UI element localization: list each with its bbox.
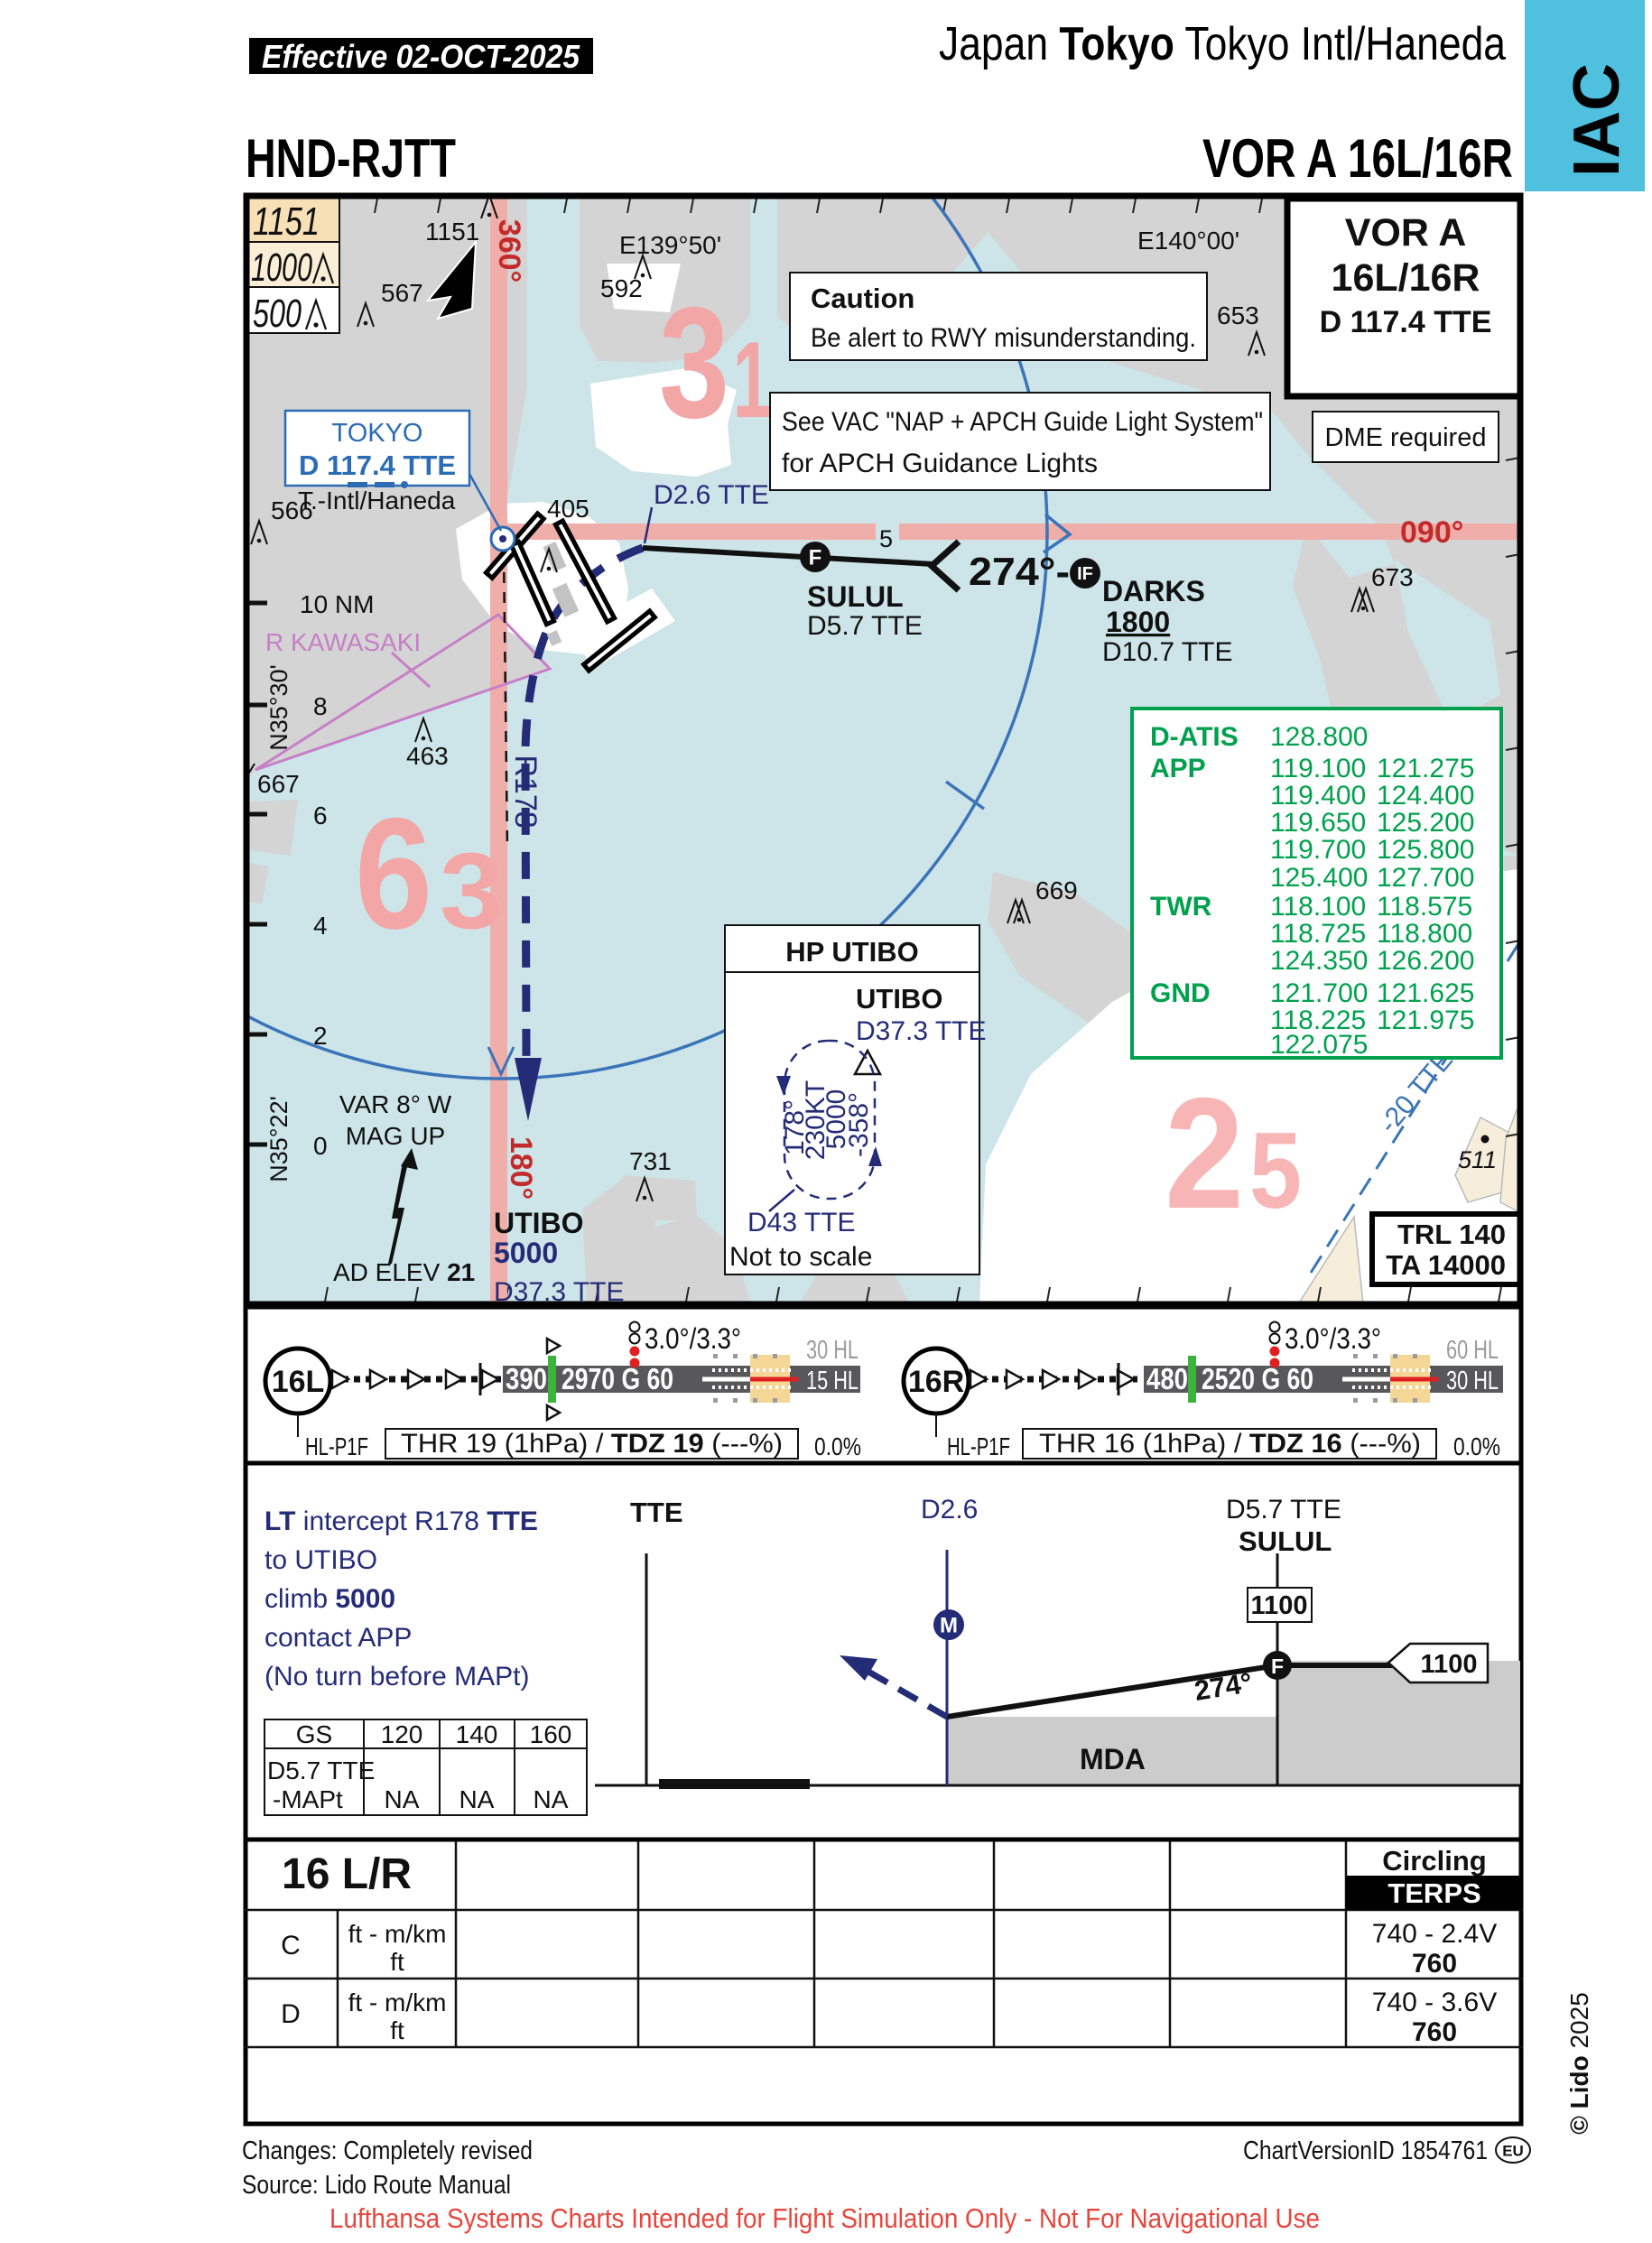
- svg-text:N35°22': N35°22': [265, 1096, 292, 1182]
- svg-text:160: 160: [530, 1720, 572, 1748]
- svg-text:2520 G 60: 2520 G 60: [1202, 1362, 1313, 1395]
- svg-text:HL-P1F: HL-P1F: [947, 1432, 1010, 1460]
- svg-text:F: F: [1271, 1654, 1284, 1678]
- svg-text:405: 405: [547, 495, 589, 523]
- svg-text:15 HL: 15 HL: [806, 1367, 858, 1395]
- svg-text:1000: 1000: [251, 246, 312, 290]
- svg-text:360°: 360°: [492, 219, 526, 283]
- svg-text:TA 14000: TA 14000: [1386, 1249, 1506, 1281]
- svg-text:1100: 1100: [1421, 1650, 1478, 1679]
- svg-text:118.100: 118.100: [1270, 892, 1366, 922]
- svg-text:1151: 1151: [425, 218, 479, 246]
- svg-text:climb 5000: climb 5000: [265, 1584, 395, 1614]
- svg-text:ft - m/km: ft - m/km: [348, 1920, 447, 1948]
- svg-text:AD ELEV 21: AD ELEV 21: [333, 1258, 475, 1286]
- svg-text:D 117.4 TTE: D 117.4 TTE: [299, 450, 456, 481]
- svg-text:121.975: 121.975: [1377, 1006, 1474, 1035]
- svg-text:125.400: 125.400: [1270, 863, 1368, 893]
- svg-text:D5.7 TTE: D5.7 TTE: [807, 611, 923, 641]
- svg-text:IAC: IAC: [1561, 63, 1633, 177]
- svg-text:121.275: 121.275: [1377, 754, 1474, 783]
- svg-text:VOR A 16L/16R: VOR A 16L/16R: [1202, 128, 1513, 189]
- svg-text:VAR 8° W: VAR 8° W: [339, 1090, 452, 1118]
- svg-text:N35°30': N35°30': [265, 664, 292, 751]
- svg-text:NA: NA: [534, 1785, 569, 1813]
- svg-text:16L: 16L: [272, 1365, 325, 1399]
- svg-text:16 L/R: 16 L/R: [282, 1850, 412, 1898]
- svg-text:T.-Intl/Haneda: T.-Intl/Haneda: [298, 487, 456, 514]
- svg-text:Not to scale: Not to scale: [729, 1242, 872, 1272]
- svg-text:124.400: 124.400: [1377, 781, 1474, 811]
- svg-text:10 NM: 10 NM: [300, 590, 374, 618]
- svg-text:760: 760: [1412, 2017, 1457, 2047]
- svg-text:UTIBO: UTIBO: [494, 1207, 584, 1239]
- svg-text:760: 760: [1412, 1949, 1457, 1979]
- svg-text:124.350: 124.350: [1270, 946, 1368, 976]
- svg-text:LT intercept R178 TTE: LT intercept R178 TTE: [265, 1506, 538, 1536]
- svg-text:TWR: TWR: [1150, 892, 1212, 922]
- svg-text:567: 567: [381, 279, 423, 307]
- svg-text:566: 566: [271, 496, 313, 524]
- svg-text:Circling: Circling: [1382, 1845, 1486, 1877]
- svg-text:126.200: 126.200: [1377, 946, 1474, 976]
- svg-text:118.725: 118.725: [1270, 919, 1366, 949]
- svg-text:EU: EU: [1502, 2143, 1524, 2160]
- svg-text:E139°50': E139°50': [619, 231, 721, 259]
- svg-text:VOR A: VOR A: [1345, 211, 1467, 255]
- svg-text:3: 3: [440, 830, 503, 951]
- svg-text:GND: GND: [1150, 978, 1211, 1008]
- svg-text:3.0°/3.3°: 3.0°/3.3°: [645, 1322, 741, 1355]
- svg-text:4: 4: [313, 912, 328, 940]
- svg-text:274°: 274°: [1193, 1666, 1255, 1707]
- svg-text:NA: NA: [459, 1785, 495, 1813]
- svg-text:D2.6: D2.6: [921, 1495, 978, 1525]
- svg-text:DME required: DME required: [1325, 423, 1487, 452]
- svg-text:511: 511: [1458, 1146, 1497, 1173]
- svg-text:500: 500: [253, 292, 302, 336]
- svg-text:16R: 16R: [908, 1365, 964, 1399]
- svg-text:TERPS: TERPS: [1387, 1877, 1480, 1909]
- svg-text:118.800: 118.800: [1377, 919, 1472, 949]
- svg-text:3: 3: [659, 275, 729, 451]
- svg-text:M: M: [940, 1614, 958, 1638]
- svg-text:THR 16 (1hPa) / TDZ 16 (---%): THR 16 (1hPa) / TDZ 16 (---%): [1039, 1429, 1421, 1459]
- svg-text:Effective 02-OCT-2025: Effective 02-OCT-2025: [262, 38, 580, 75]
- svg-text:0.0%: 0.0%: [1453, 1432, 1500, 1460]
- svg-text:D-ATIS: D-ATIS: [1150, 722, 1239, 752]
- svg-text:121.700: 121.700: [1270, 978, 1368, 1008]
- svg-text:118.575: 118.575: [1377, 892, 1472, 922]
- svg-text:5000: 5000: [494, 1237, 558, 1269]
- svg-text:1: 1: [733, 320, 771, 440]
- svg-text:1800: 1800: [1106, 606, 1170, 638]
- svg-text:180°: 180°: [504, 1136, 538, 1200]
- svg-text:© Lido 2025: © Lido 2025: [1565, 1992, 1593, 2135]
- svg-text:ft: ft: [390, 1948, 404, 1976]
- svg-text:5: 5: [879, 525, 893, 552]
- svg-text:30 HL: 30 HL: [1446, 1367, 1499, 1395]
- svg-text:128.800: 128.800: [1270, 722, 1368, 752]
- svg-text:673: 673: [1371, 563, 1414, 591]
- svg-text:D37.3 TTE: D37.3 TTE: [856, 1016, 987, 1046]
- svg-text:120: 120: [381, 1720, 423, 1748]
- svg-text:Japan Tokyo Tokyo Intl/Haneda: Japan Tokyo Tokyo Intl/Haneda: [939, 18, 1506, 70]
- svg-text:Caution: Caution: [811, 283, 914, 314]
- svg-text:R178: R178: [508, 755, 543, 828]
- svg-text:Lufthansa Systems Charts Inten: Lufthansa Systems Charts Intended for Fl…: [329, 2202, 1320, 2234]
- svg-text:D43 TTE: D43 TTE: [747, 1208, 856, 1237]
- svg-text:(No turn before MAPt): (No turn before MAPt): [265, 1662, 529, 1692]
- svg-text:Changes: Completely revised: Changes: Completely revised: [242, 2136, 533, 2165]
- svg-text:119.700: 119.700: [1270, 835, 1366, 865]
- svg-text:667: 667: [257, 770, 300, 798]
- svg-text:2970 G 60: 2970 G 60: [561, 1362, 673, 1395]
- svg-text:D5.7 TTE: D5.7 TTE: [267, 1756, 375, 1784]
- svg-text:6: 6: [313, 802, 328, 830]
- svg-text:ft: ft: [390, 2016, 404, 2044]
- svg-text:MDA: MDA: [1080, 1743, 1146, 1775]
- svg-text:ft - m/km: ft - m/km: [348, 1988, 447, 2016]
- svg-text:DARKS: DARKS: [1102, 575, 1205, 607]
- svg-text:SULUL: SULUL: [1239, 1525, 1332, 1557]
- svg-text:127.700: 127.700: [1377, 863, 1474, 893]
- svg-text:60 HL: 60 HL: [1446, 1336, 1499, 1365]
- svg-text:178°: 178°: [780, 1099, 810, 1155]
- svg-text:125.200: 125.200: [1377, 808, 1474, 838]
- svg-text:740 - 2.4V: 740 - 2.4V: [1372, 1919, 1497, 1949]
- svg-text:731: 731: [629, 1147, 672, 1175]
- svg-text:463: 463: [406, 742, 449, 770]
- svg-text:125.800: 125.800: [1377, 835, 1474, 865]
- svg-text:Source: Lido Route Manual: Source: Lido Route Manual: [242, 2171, 511, 2200]
- svg-text:Be alert to RWY misunderstandi: Be alert to RWY misunderstanding.: [811, 323, 1196, 353]
- svg-text:APP: APP: [1150, 754, 1206, 783]
- svg-text:2: 2: [1165, 1066, 1244, 1242]
- svg-text:D10.7 TTE: D10.7 TTE: [1102, 637, 1233, 667]
- svg-text:D5.7 TTE: D5.7 TTE: [1226, 1495, 1341, 1525]
- svg-text:contact APP: contact APP: [265, 1623, 412, 1653]
- svg-text:D2.6 TTE: D2.6 TTE: [654, 480, 769, 510]
- svg-text:F: F: [809, 546, 822, 570]
- svg-text:IF: IF: [1077, 564, 1093, 584]
- svg-text:669: 669: [1035, 876, 1078, 904]
- svg-text:MAG UP: MAG UP: [346, 1122, 445, 1150]
- svg-text:ChartVersionID 1854761: ChartVersionID 1854761: [1243, 2136, 1488, 2165]
- svg-text:16L/16R: 16L/16R: [1332, 256, 1480, 300]
- svg-text:TTE: TTE: [630, 1497, 683, 1528]
- svg-text:1151: 1151: [253, 199, 320, 244]
- svg-text:274°-: 274°-: [969, 550, 1070, 594]
- svg-text:119.100: 119.100: [1270, 754, 1366, 783]
- svg-text:D: D: [281, 1999, 301, 2029]
- svg-text:HL-P1F: HL-P1F: [305, 1432, 368, 1460]
- svg-text:for APCH Guidance Lights: for APCH Guidance Lights: [782, 449, 1098, 478]
- svg-text:-MAPt: -MAPt: [273, 1785, 343, 1813]
- svg-text:HND-RJTT: HND-RJTT: [246, 128, 456, 189]
- svg-text:0: 0: [313, 1132, 328, 1160]
- svg-text:SULUL: SULUL: [807, 580, 904, 613]
- svg-text:UTIBO: UTIBO: [856, 983, 942, 1015]
- svg-text:D 117.4 TTE: D 117.4 TTE: [1320, 305, 1492, 339]
- svg-text:30 HL: 30 HL: [806, 1336, 858, 1365]
- svg-text:390: 390: [506, 1362, 547, 1395]
- svg-text:5: 5: [1249, 1110, 1302, 1231]
- svg-text:653: 653: [1217, 301, 1259, 329]
- svg-text:See VAC "NAP + APCH Guide Ligh: See VAC "NAP + APCH Guide Light System": [782, 407, 1263, 437]
- svg-text:3.0°/3.3°: 3.0°/3.3°: [1285, 1322, 1381, 1355]
- svg-text:122.075: 122.075: [1270, 1030, 1368, 1060]
- svg-text:R KAWASAKI: R KAWASAKI: [265, 628, 421, 656]
- svg-text:592: 592: [600, 274, 643, 302]
- svg-text:140: 140: [456, 1720, 498, 1748]
- svg-text:6: 6: [355, 786, 432, 962]
- svg-text:GS: GS: [296, 1720, 332, 1748]
- svg-text:119.400: 119.400: [1270, 781, 1366, 811]
- svg-text:119.650: 119.650: [1270, 808, 1366, 838]
- svg-text:C: C: [281, 1931, 301, 1960]
- svg-text:NA: NA: [385, 1785, 420, 1813]
- svg-text:THR 19 (1hPa) / TDZ 19 (---%): THR 19 (1hPa) / TDZ 19 (---%): [401, 1429, 783, 1459]
- svg-text:to UTIBO: to UTIBO: [265, 1545, 377, 1575]
- svg-text:1100: 1100: [1251, 1591, 1308, 1620]
- svg-text:740 - 3.6V: 740 - 3.6V: [1372, 1988, 1497, 2017]
- svg-text:E140°00': E140°00': [1137, 227, 1239, 255]
- svg-text:TOKYO: TOKYO: [332, 419, 423, 448]
- svg-text:121.625: 121.625: [1377, 978, 1474, 1008]
- svg-text:HP UTIBO: HP UTIBO: [785, 936, 919, 968]
- svg-text:0.0%: 0.0%: [814, 1432, 861, 1460]
- svg-text:480: 480: [1146, 1362, 1188, 1395]
- svg-text:TRL 140: TRL 140: [1397, 1219, 1506, 1250]
- svg-text:090°: 090°: [1400, 515, 1463, 550]
- svg-text:8: 8: [313, 692, 328, 720]
